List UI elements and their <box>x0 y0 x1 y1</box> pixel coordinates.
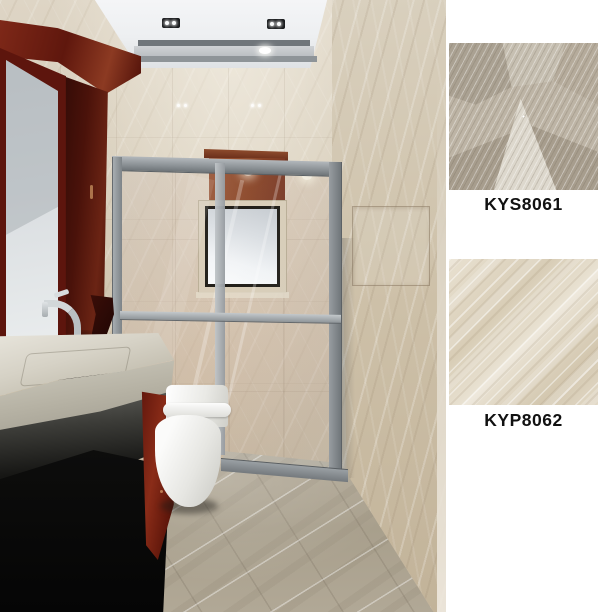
bathroom-scene <box>0 0 446 612</box>
page: KYS8061 KYP8062 <box>0 0 600 612</box>
ceiling-spotlight-left <box>162 18 180 28</box>
product-panel: KYS8061 KYP8062 <box>446 0 600 612</box>
glass-reflection-streak-2 <box>220 174 282 432</box>
recessed-downlight <box>259 47 271 54</box>
wall-spot-reflection-left <box>177 104 188 108</box>
wall-niche <box>352 206 430 286</box>
tile-swatch-kys8061 <box>449 43 598 190</box>
product-code-label-1: KYS8061 <box>449 194 598 215</box>
tile-swatch-kyp8062 <box>449 259 598 405</box>
faucet-tip <box>42 302 48 317</box>
swatch-speckles <box>449 43 598 190</box>
ceiling-recess-trim-gray <box>131 56 317 62</box>
ceiling-spotlight-right <box>267 19 285 29</box>
wall-edge-highlight <box>437 80 446 612</box>
product-code-label-2: KYP8062 <box>449 410 598 431</box>
cabinet-door-knob-2 <box>160 490 163 493</box>
wall-spot-reflection-right <box>251 104 262 108</box>
cabinet-handle <box>90 185 93 199</box>
